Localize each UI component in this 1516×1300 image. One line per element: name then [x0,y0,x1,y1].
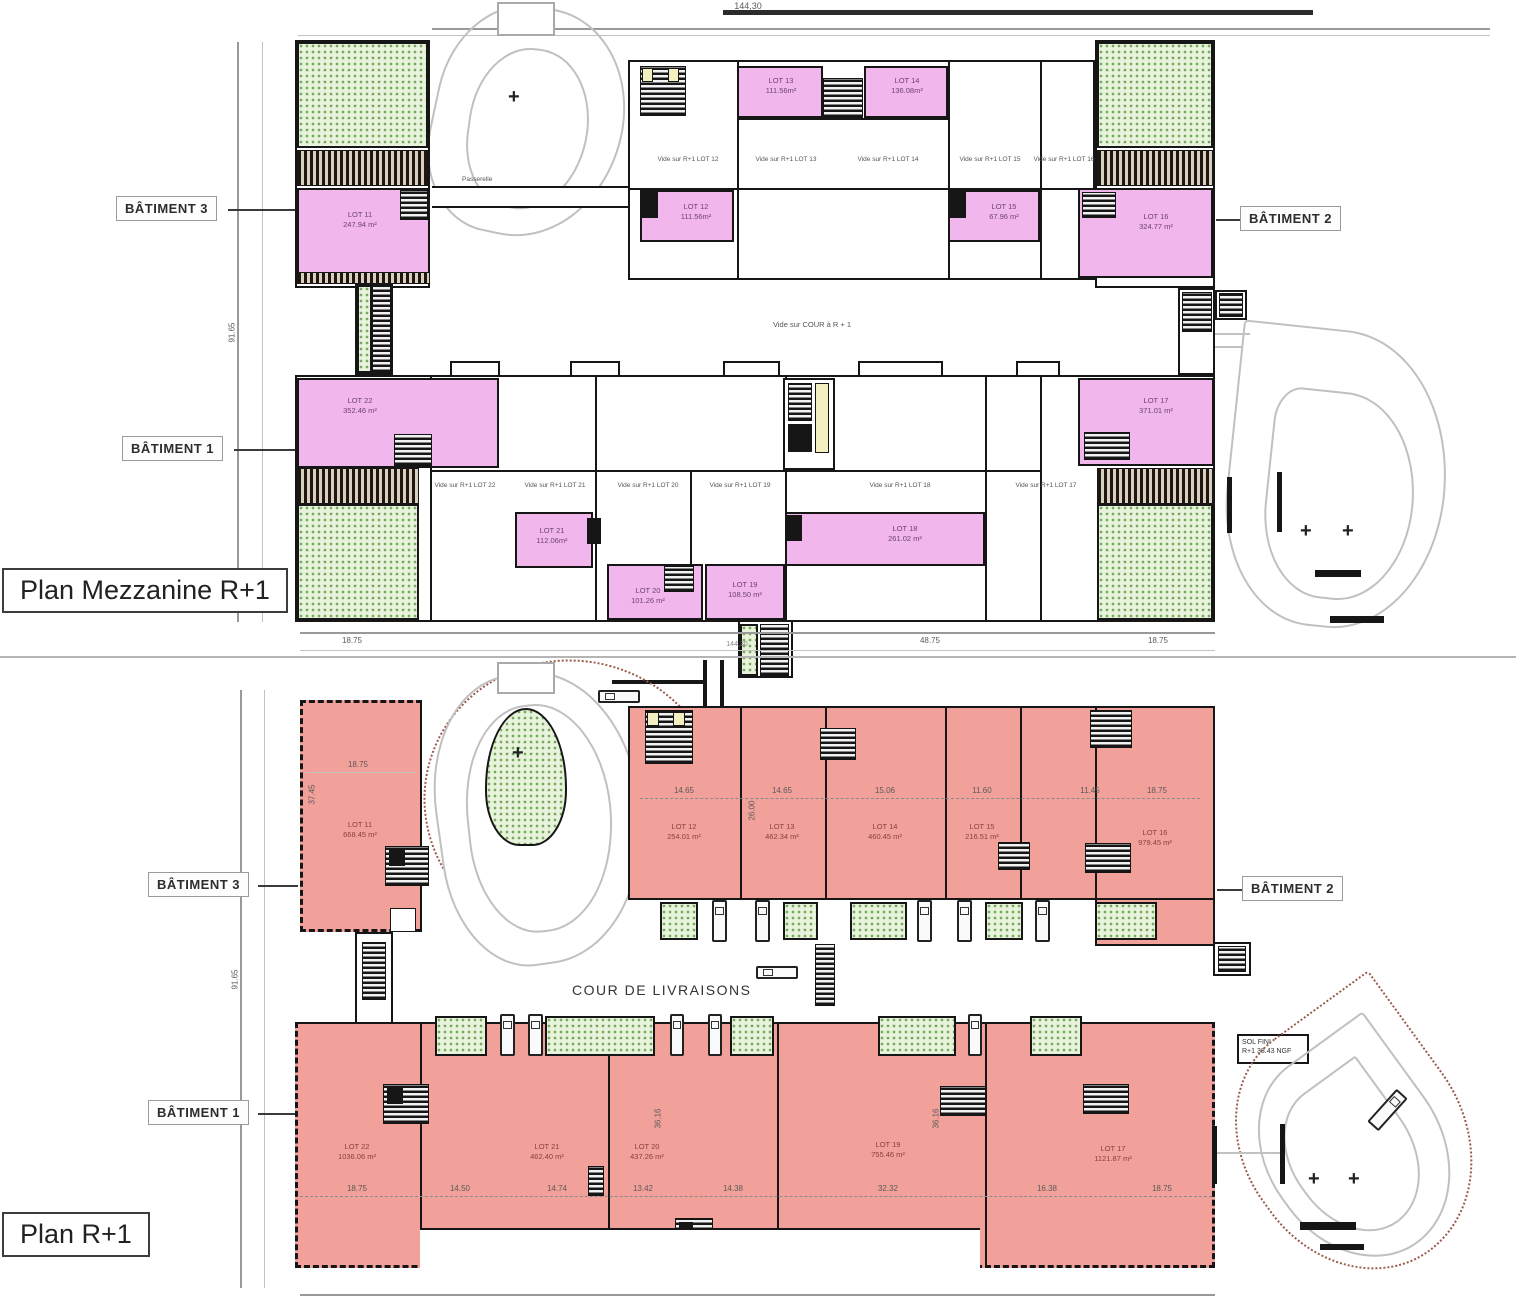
lot-name: LOT 11 [343,210,377,220]
stairs-icon [1219,293,1243,317]
survey-mark [1308,1168,1320,1191]
stairs-icon [1218,946,1246,972]
dim-text: 14.50 [450,1184,470,1193]
lot-label: LOT 18 261.02 m² [888,524,922,544]
dim-text: 18.75 [1148,636,1168,645]
batiment-2-label: BÂTIMENT 2 [1240,206,1341,231]
stairs-icon [940,1086,986,1116]
wall [430,470,1042,472]
louvre-strip [1097,468,1213,504]
lot-label: LOT 20 101.26 m² [631,586,665,606]
wall [948,60,950,280]
wall [985,1022,987,1268]
leader-line [258,885,298,887]
green-terrace [1097,42,1213,148]
green-terrace [1097,504,1213,620]
vide-label: Vide sur R+1 LOT 17 [1015,482,1076,489]
green-dock [1030,1016,1082,1056]
lot-area: 101.26 m² [631,596,665,606]
green-terrace [297,504,419,620]
dim-text: 14.65 [772,786,792,795]
stairs-icon [664,566,694,592]
lot-name: LOT 12 [681,202,712,212]
stairs-icon [394,434,432,466]
stairs-icon [389,850,405,866]
stairs-icon [587,518,601,544]
stairs-icon [1090,710,1132,748]
cour-de-livraisons-label: COUR DE LIVRAISONS [572,982,751,998]
lot-area: 67.96 m² [989,212,1019,222]
lot-name: LOT 13 [766,76,797,86]
lot-name: LOT 16 [1139,212,1173,222]
ramp-bar-1 [1300,1222,1356,1230]
green-dock [850,902,907,940]
dim-text: 36.16 [654,1108,663,1128]
lot-name: LOT 19 [871,1140,905,1150]
vide-label: Vide sur R+1 LOT 15 [959,156,1020,163]
roof-structure [497,2,555,36]
batiment-3-label: BÂTIMENT 3 [116,196,217,221]
dim-line-left-2 [262,42,263,622]
dim-line-bottom [300,1294,1215,1296]
stairs-icon [820,728,856,760]
dim-total-top: 144,30 [734,1,762,11]
truck-icon [917,900,932,942]
dim-text: 16.38 [1037,1184,1057,1193]
lot-area: 462.40 m² [530,1152,564,1162]
truck-icon [1035,900,1050,942]
leader-line [1217,889,1242,891]
green-dock [878,1016,956,1056]
vide-label: Vide sur R+1 LOT 18 [869,482,930,489]
lot-name: LOT 22 [343,396,377,406]
lot-name: LOT 16 [1138,828,1172,838]
lot-label: LOT 15 67.96 m² [989,202,1019,222]
lot-name: LOT 17 [1094,1144,1131,1154]
ramp-wall-1 [1212,1126,1217,1184]
lot-area: 111.56m² [681,212,712,222]
survey-mark [1348,1168,1360,1191]
dim-text: 14.38 [723,1184,743,1193]
wall [595,375,597,622]
vide-label: Vide sur R+1 LOT 19 [709,482,770,489]
lot-name: LOT 14 [891,76,923,86]
lot-area: 1036.06 m² [338,1152,376,1162]
dock-recess [420,1228,980,1268]
lot-label: LOT 14 136.08m² [891,76,923,96]
ramp-wall-1 [703,660,707,710]
vide-label: Vide sur R+1 LOT 12 [657,156,718,163]
truck-icon [670,1014,684,1056]
dim-text: 14.65 [674,786,694,795]
truck-icon [528,1014,543,1056]
lot-name: LOT 20 [631,586,665,596]
balcony [858,361,943,377]
lot-area: 136.08m² [891,86,923,96]
lot-label: LOT 14 460.45 m² [868,822,902,842]
lot-label: LOT 19 755.46 m² [871,1140,905,1160]
stairs-icon [1085,843,1131,873]
truck-icon [957,900,972,942]
lot-area: 324.77 m² [1139,222,1173,232]
ramp-wall-2 [720,660,724,710]
batiment-1-label: BÂTIMENT 1 [122,436,223,461]
dim-line-left-2 [264,690,265,1288]
green-dock [545,1016,655,1056]
stairs-icon [1083,1084,1129,1114]
batiment-2-label: BÂTIMENT 2 [1242,876,1343,901]
dock-notch [390,908,416,932]
stairs-icon [362,942,386,1000]
balcony [723,361,780,377]
lot-area: 668.45 m² [343,830,377,840]
dim-text: 18.75 [342,636,362,645]
road-link-2 [1215,346,1243,348]
balcony [450,361,500,377]
dim-text: 37.45 [308,784,317,804]
lot-label: LOT 22 1036.06 m² [338,1142,376,1162]
lot-label: LOT 22 352.46 m² [343,396,377,416]
stairs-icon [387,1088,403,1104]
lot-name: LOT 21 [536,526,567,536]
sheet-divider [0,656,1516,658]
elevator-shaft [668,68,679,82]
lot-label: LOT 19 108.50 m² [728,580,762,600]
stairs-icon [788,383,812,421]
road-link-1 [1215,333,1250,335]
stairs-icon [1084,432,1130,460]
green-strip [357,285,372,373]
lot-label: LOT 11 247.94 m² [343,210,377,230]
lot-name: LOT 14 [868,822,902,832]
elevator-shaft [815,383,829,453]
lot-name: LOT 15 [965,822,999,832]
wall [1040,375,1042,622]
green-dock [435,1016,487,1056]
dim-text: 11.45 [1080,786,1099,795]
dim-text: 18.75 [1152,1184,1172,1193]
wall [740,706,742,900]
wall [737,118,950,120]
floor-plan-sheet: 144,30 91.65 Passerelle LOT 11 247.94 m² [0,0,1516,1300]
green-dock [1095,902,1157,940]
stairs-icon [950,192,966,218]
lot-label: LOT 12 111.56m² [681,202,712,222]
plan-mezzanine-title: Plan Mezzanine R+1 [2,568,288,613]
lot-area: 1121.87 m² [1094,1154,1131,1164]
survey-mark [512,742,524,765]
louvre-strip [1097,150,1213,186]
ramp-wall-2 [1277,472,1282,532]
lot-label: LOT 13 462.34 m² [765,822,799,842]
lot-area: 254.01 m² [667,832,701,842]
lot-name: LOT 17 [1139,396,1173,406]
green-dock [985,902,1023,940]
batiment-3-label: BÂTIMENT 3 [148,872,249,897]
ramp-wall-1 [1227,477,1232,533]
crane-mark [508,86,520,109]
lot-label: LOT 17 1121.87 m² [1094,1144,1131,1164]
ramp-wall-2 [1280,1124,1285,1184]
dim-text: 11.60 [972,786,991,795]
leader-line [234,449,295,451]
stairs-icon [1182,292,1212,332]
stairs-icon [998,842,1030,870]
lot-name: LOT 20 [630,1142,664,1152]
leader-line [228,209,295,211]
truck-icon [755,900,770,942]
dim-text: 18.75 [1147,786,1167,795]
dim-text: 48.75 [920,636,940,645]
lot-area: 437.26 m² [630,1152,664,1162]
green-dock [730,1016,774,1056]
stairs-icon [823,78,863,118]
dim-height-left: 91.65 [231,969,240,989]
truck-icon [756,966,798,979]
truck-icon [500,1014,515,1056]
dim-line-dashed [300,1196,1212,1197]
lot-name: LOT 11 [343,820,377,830]
dim-line [306,772,416,773]
dim-text: 14.74 [547,1184,567,1193]
lot-name: LOT 19 [728,580,762,590]
stairs-icon [642,192,658,218]
lot-name: LOT 22 [338,1142,376,1152]
lot-area: 216.51 m² [965,832,999,842]
dim-line-left [237,42,239,622]
stairs-icon [788,424,812,452]
passerelle-bridge [432,186,628,208]
lot-name: LOT 18 [888,524,922,534]
lot-name: LOT 12 [667,822,701,832]
lot-18-mezz [785,512,985,566]
ramp-bar-1 [1315,570,1361,577]
lot-label: LOT 20 437.26 m² [630,1142,664,1162]
leader-line [258,1113,295,1115]
road-link [1217,1152,1280,1154]
truck-icon [712,900,727,942]
dim-line-bottom [300,632,1215,634]
stairs-icon [787,515,802,541]
lot-label: LOT 16 979.45 m² [1138,828,1172,848]
stairs-icon [372,285,391,373]
truck-icon [708,1014,722,1056]
lot-label: LOT 12 254.01 m² [667,822,701,842]
lot-area: 108.50 m² [728,590,762,600]
lot-area: 247.94 m² [343,220,377,230]
lot-area: 352.46 m² [343,406,377,416]
batiment-1-label: BÂTIMENT 1 [148,1100,249,1125]
vide-label: Vide sur R+1 LOT 20 [617,482,678,489]
lot-area: 460.45 m² [868,832,902,842]
stairs-icon [400,190,428,220]
vide-label: Vide sur R+1 LOT 14 [857,156,918,163]
elevator-shaft [642,68,653,82]
green-terrace [297,42,428,148]
green-dock [660,902,698,940]
vide-label: Vide sur R+1 LOT 16 [1033,156,1094,163]
louvre-strip [297,468,419,504]
stairs-icon [588,1166,604,1196]
dim-text: 18.75 [348,760,368,769]
lot-label: LOT 13 111.56m² [766,76,797,96]
lot-label: LOT 15 216.51 m² [965,822,999,842]
roof-edge-bar [723,10,1313,15]
elevator-shaft [647,712,659,726]
dim-text: 18.75 [347,1184,367,1193]
balcony [1016,361,1060,377]
dim-text: 26.00 [748,800,757,820]
ramp-bar-2 [1330,616,1384,623]
lot-name: LOT 13 [765,822,799,832]
lot-area: 979.45 m² [1138,838,1172,848]
truck-icon [968,1014,982,1056]
lot-area: 755.46 m² [871,1150,905,1160]
lot-area: 112.06m² [536,536,567,546]
stairs-icon [1082,192,1116,218]
lot-area: 462.34 m² [765,832,799,842]
vide-label: Vide sur R+1 LOT 21 [524,482,585,489]
wall [1040,60,1042,280]
dim-line-dashed [640,798,1200,799]
dim-text: 32.32 [878,1184,898,1193]
vide-label: Vide sur R+1 LOT 22 [434,482,495,489]
plan-r1-title: Plan R+1 [2,1212,150,1257]
green-dock [783,902,818,940]
elevator-shaft [673,712,685,726]
roof-structure [497,662,555,694]
leader-line [1216,219,1240,221]
dim-line-bottom-2 [300,650,1215,651]
louvre-strip [297,150,428,186]
lot-label: LOT 16 324.77 m² [1139,212,1173,232]
lot-name: LOT 15 [989,202,1019,212]
dim-text: 13.42 [633,1184,653,1193]
lot-name: LOT 21 [530,1142,564,1152]
lot-area: 371.01 m² [1139,406,1173,416]
courtyard-vide-label: Vide sur COUR à R + 1 [773,320,851,329]
lot-label: LOT 17 371.01 m² [1139,396,1173,416]
ramp-bar-2 [1320,1244,1364,1250]
dim-height-left: 91.65 [228,322,237,342]
dim-line-left [240,690,242,1288]
lot-area: 261.02 m² [888,534,922,544]
dim-text: 15.06 [875,786,895,795]
passerelle-label: Passerelle [462,176,492,183]
survey-mark [1342,520,1354,543]
dim-text: 144,30 [726,641,747,648]
vide-label: Vide sur R+1 LOT 13 [755,156,816,163]
lot-area: 111.56m² [766,86,797,96]
survey-mark [1300,520,1312,543]
louvre-strip [297,272,430,284]
wall [945,706,947,900]
lot-label: LOT 21 112.06m² [536,526,567,546]
stairs-icon [815,944,835,1006]
wall [985,375,987,622]
lot-label: LOT 21 462.40 m² [530,1142,564,1162]
wall [1020,706,1022,900]
lot-label: LOT 11 668.45 m² [343,820,377,840]
lot-11-r1 [300,700,422,932]
